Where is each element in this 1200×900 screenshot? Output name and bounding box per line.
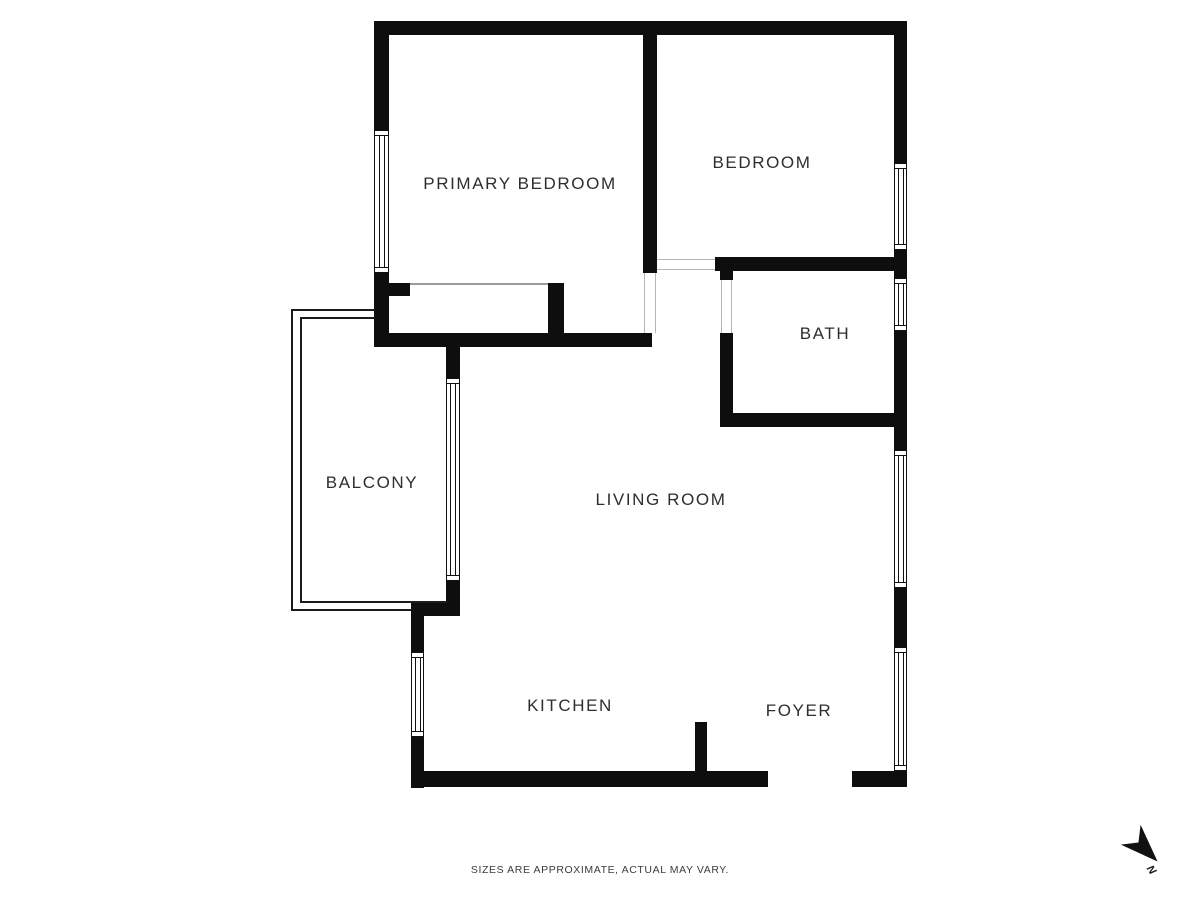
bath-bottom-wall bbox=[720, 413, 894, 427]
corridor-bottom-wall bbox=[374, 333, 652, 347]
right-wall-seg3 bbox=[894, 331, 907, 450]
room-label-bedroom: BEDROOM bbox=[712, 153, 811, 173]
north-arrow: N bbox=[1118, 824, 1166, 882]
bedroom-bottom-wall bbox=[715, 257, 894, 271]
bedroom-window-sill bbox=[895, 244, 906, 245]
room-label-kitchen: KITCHEN bbox=[527, 696, 613, 716]
living-room-window bbox=[894, 450, 907, 588]
balcony-inner-bottom bbox=[300, 601, 447, 603]
bedroom-window-pane bbox=[898, 169, 904, 244]
room-label-balcony: BALCONY bbox=[326, 473, 418, 493]
right-wall-seg2 bbox=[894, 250, 907, 278]
foyer-window-sill bbox=[895, 765, 906, 766]
kitchen-foyer-divider bbox=[695, 722, 707, 771]
kitchen-window-sill bbox=[412, 731, 423, 732]
kitchen-corner-wall bbox=[411, 603, 460, 616]
living-room-window-pane bbox=[898, 456, 904, 582]
room-label-primary-bedroom: PRIMARY BEDROOM bbox=[423, 174, 616, 194]
bedroom-window bbox=[894, 163, 907, 250]
closet-left-nib bbox=[389, 283, 410, 296]
closet-right-wall bbox=[548, 283, 564, 335]
bath-window bbox=[894, 278, 907, 331]
bottom-wall-right bbox=[852, 771, 907, 787]
kitchen-window bbox=[411, 652, 424, 737]
right-wall-seg4 bbox=[894, 588, 907, 647]
right-wall-seg1 bbox=[894, 21, 907, 163]
top-wall bbox=[374, 21, 907, 35]
kitchen-left-wall-seg1 bbox=[411, 616, 424, 652]
room-label-foyer: FOYER bbox=[766, 701, 833, 721]
primary-bedroom-window-sill bbox=[375, 267, 388, 268]
balcony-outer-left bbox=[291, 309, 293, 611]
balcony-inner-left bbox=[300, 317, 302, 603]
bottom-wall-left bbox=[411, 771, 768, 787]
left-wall-seg1 bbox=[374, 21, 389, 130]
balcony-inner-top bbox=[300, 317, 375, 319]
bath-door bbox=[720, 280, 733, 333]
foyer-window bbox=[894, 647, 907, 771]
disclaimer-text: SIZES ARE APPROXIMATE, ACTUAL MAY VARY. bbox=[471, 864, 729, 876]
bath-window-sill bbox=[895, 325, 906, 326]
bath-window-pane bbox=[898, 284, 904, 325]
room-label-living-room: LIVING ROOM bbox=[596, 490, 727, 510]
balcony-sliding-door-pane bbox=[450, 384, 456, 575]
entry-door bbox=[768, 771, 852, 787]
balcony-door-bottom-stub bbox=[446, 581, 460, 603]
floor-plan: PRIMARY BEDROOMBEDROOMBATHBALCONYLIVING … bbox=[0, 0, 1200, 900]
closet-front-line bbox=[410, 283, 548, 285]
balcony-outer-bottom bbox=[291, 609, 412, 611]
bedroom-divider-wall bbox=[643, 34, 657, 273]
bath-left-wall-stub bbox=[720, 271, 733, 280]
living-room-window-sill bbox=[895, 582, 906, 583]
floor-plan-page: PRIMARY BEDROOMBEDROOMBATHBALCONYLIVING … bbox=[0, 0, 1200, 900]
primary-bedroom-door bbox=[643, 273, 657, 333]
kitchen-window-pane bbox=[415, 658, 421, 731]
primary-bedroom-window-pane bbox=[379, 136, 385, 267]
balcony-sliding-door-sill bbox=[447, 575, 459, 576]
balcony-outer-top bbox=[291, 309, 375, 311]
bedroom-door bbox=[657, 257, 715, 271]
primary-bedroom-window bbox=[374, 130, 389, 273]
room-label-bath: BATH bbox=[800, 324, 850, 344]
balcony-door-top-stub bbox=[446, 347, 460, 378]
balcony-sliding-door bbox=[446, 378, 460, 581]
north-arrow-icon bbox=[1111, 815, 1173, 877]
foyer-window-pane bbox=[898, 653, 904, 765]
